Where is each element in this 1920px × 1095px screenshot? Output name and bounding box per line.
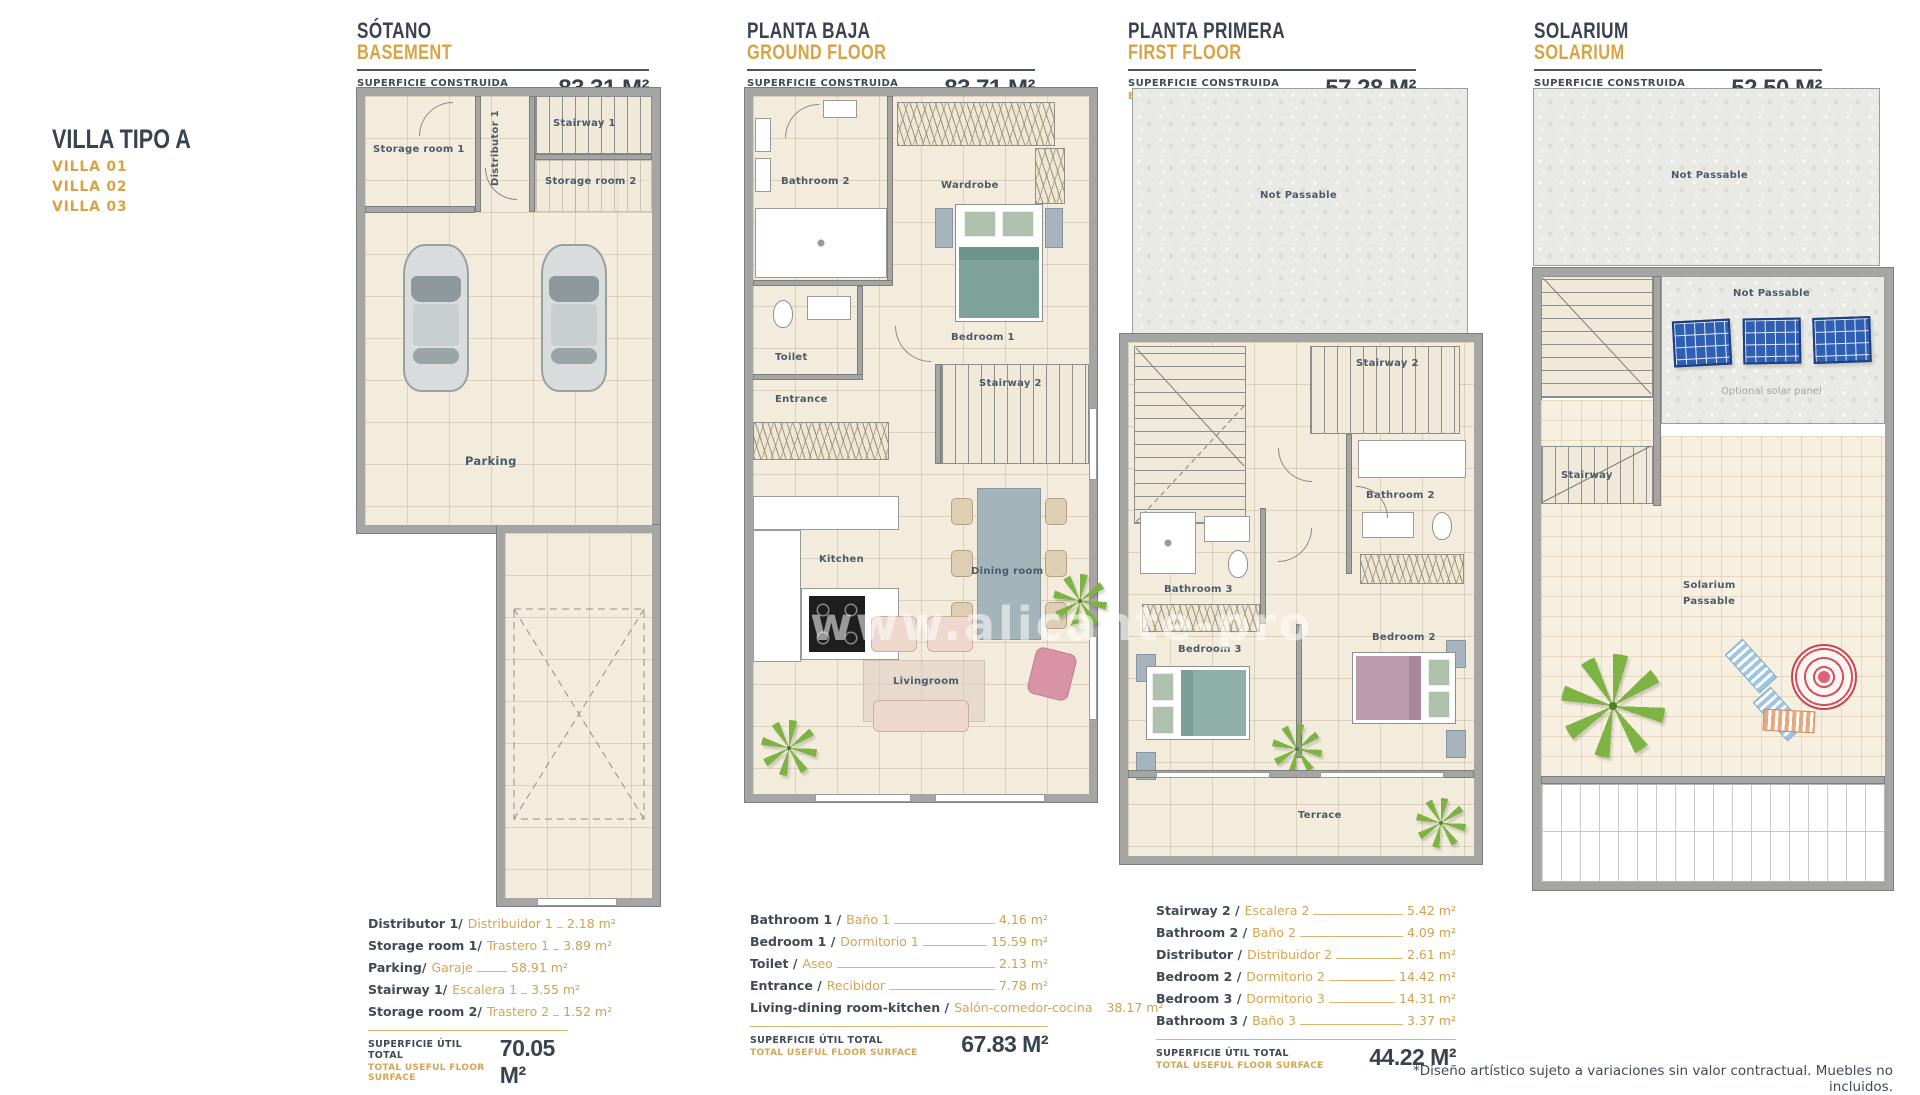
floor-name-es: SÓTANO [357, 20, 585, 42]
armchair [927, 616, 973, 652]
washbasin [755, 158, 771, 192]
toilet-cistern [823, 100, 857, 118]
sofa [873, 700, 969, 732]
sun-lounger-orange [1762, 709, 1815, 734]
nightstand [935, 208, 953, 248]
room-name-en: Bathroom 1 / [750, 912, 841, 927]
solarium-label-line1: Solarium [1683, 580, 1736, 591]
wall [1653, 276, 1661, 506]
room-row: Bathroom 1 /Baño 14.16 m² [750, 912, 1048, 927]
toilet-label: Toilet [775, 352, 808, 363]
stair-landing [1541, 400, 1653, 444]
toilet-bowl [773, 300, 793, 328]
bathtub [1358, 440, 1466, 478]
wall [1260, 508, 1266, 624]
leader-line [553, 1015, 559, 1016]
not-passable-top-label: Not Passable [1671, 170, 1748, 181]
total-label-en: TOTAL USEFUL FLOOR SURFACE [368, 1063, 500, 1083]
terrace-label: Terrace [1298, 810, 1342, 821]
plant [1053, 574, 1107, 628]
dining-chair [951, 498, 973, 525]
villa-type-title: VILLA TIPO A [52, 124, 191, 155]
room-row: Bedroom 1 /Dormitorio 115.59 m² [750, 934, 1048, 949]
bedroom-1-label: Bedroom 1 [951, 332, 1015, 343]
blanket-fold [1181, 670, 1193, 736]
leader-line [521, 993, 527, 994]
basement-room-list: Distributor 1/Distribuidor 12.18 m² Stor… [368, 916, 568, 1089]
room-name-es: Escalera 2 [1245, 903, 1310, 918]
livingroom-label: Livingroom [893, 676, 959, 687]
villa-02-label: VILLA 02 [52, 179, 226, 195]
kitchen-label: Kitchen [819, 554, 864, 565]
blanket-fold [959, 247, 1039, 260]
wall [1541, 776, 1885, 784]
room-name-en: Stairway 1/ [368, 982, 447, 997]
solar-panel [1672, 319, 1732, 368]
leader-line [477, 971, 507, 972]
plant [1416, 798, 1466, 848]
room-name-en: Bedroom 3 / [1156, 991, 1241, 1006]
washbasin [1204, 516, 1250, 542]
room-area: 3.89 m² [563, 938, 612, 953]
room-area: 2.18 m² [567, 916, 616, 931]
total-label-es: SUPERFICIE ÚTIL TOTAL [368, 1039, 500, 1061]
room-area: 2.13 m² [999, 956, 1048, 971]
blanket-fold [1409, 656, 1421, 720]
room-name-es: Distribuidor 1 [468, 916, 553, 931]
washbasin [755, 118, 771, 152]
car-1 [403, 244, 469, 392]
room-name-es: Escalera 1 [452, 982, 517, 997]
pergola-slats [1541, 784, 1885, 882]
pillow [1152, 673, 1174, 701]
total-useful-surface: 67.83 M² [961, 1031, 1048, 1058]
basement-plan: Storage room 1 Distributor 1 Stairway 1 … [357, 88, 660, 906]
room-row: Distributor /Distribuidor 22.61 m² [1156, 947, 1456, 962]
car-roof [551, 304, 597, 346]
room-row: Bedroom 3 /Dormitorio 314.31 m² [1156, 991, 1456, 1006]
room-area: 4.16 m² [999, 912, 1048, 927]
pillow [1428, 691, 1450, 718]
leader-line [1336, 958, 1403, 959]
stairway-2-label: Stairway 2 [979, 378, 1042, 389]
floor-name-es: SOLARIUM [1534, 20, 1759, 42]
wall [753, 280, 893, 286]
room-row: Distributor 1/Distribuidor 12.18 m² [368, 916, 568, 931]
armchair [871, 616, 917, 652]
wardrobe-label: Wardrobe [941, 180, 999, 191]
dining-room-label: Dining room [971, 566, 1043, 577]
room-name-es: Recibidor [827, 978, 885, 993]
bathroom-3-label: Bathroom 3 [1164, 584, 1233, 595]
room-name-es: Dormitorio 2 [1246, 969, 1325, 984]
leader-line [923, 945, 987, 946]
room-row: Living-dining room-kitchen /Salón-comedo… [750, 1000, 1048, 1015]
floor-name-en: BASEMENT [357, 42, 585, 64]
room-name-en: Storage room 2/ [368, 1004, 482, 1019]
room-name-en: Bathroom 2 / [1156, 925, 1247, 940]
stairway-label: Stairway [1561, 470, 1613, 481]
room-name-en: Distributor / [1156, 947, 1242, 962]
header-rule [357, 69, 649, 71]
room-name-es: Trastero 1 [487, 938, 549, 953]
room-name-es: Dormitorio 3 [1246, 991, 1325, 1006]
room-row: Parking/Garaje58.91 m² [368, 960, 568, 975]
header-rule [1128, 69, 1416, 71]
nightstand [1045, 208, 1063, 248]
wardrobe-hatch [897, 102, 1055, 146]
room-row: Storage room 1/Trastero 13.89 m² [368, 938, 568, 953]
shower-tray [755, 208, 887, 278]
room-name-es: Trastero 2 [487, 1004, 549, 1019]
leader-line [889, 989, 995, 990]
room-area: 15.59 m² [991, 934, 1048, 949]
toilet-bowl [1228, 550, 1248, 578]
room-name-en: Stairway 2 / [1156, 903, 1240, 918]
room-name-en: Toilet / [750, 956, 797, 971]
total-label-es: SUPERFICIE ÚTIL TOTAL [1156, 1048, 1324, 1059]
bed-bedroom-3 [1146, 666, 1250, 740]
solarium-plan: Not Passable Stairway Not Passable Optio… [1533, 88, 1893, 890]
leader-line [553, 949, 559, 950]
kitchen-counter-left [753, 530, 801, 662]
window [1089, 636, 1097, 720]
parasol-umbrella [1791, 644, 1857, 710]
toilet-bowl [1432, 512, 1452, 540]
room-name-es: Baño 2 [1252, 925, 1296, 940]
wall [1346, 434, 1352, 574]
floor-name-en: GROUND FLOOR [747, 42, 972, 64]
first-floor-room-list: Stairway 2 /Escalera 25.42 m² Bathroom 2… [1156, 903, 1456, 1071]
room-name-en: Bathroom 3 / [1156, 1013, 1247, 1028]
leader-line [1329, 1002, 1395, 1003]
plant [761, 720, 817, 776]
room-area: 4.09 m² [1407, 925, 1456, 940]
pillow [1428, 659, 1450, 686]
room-row: Stairway 2 /Escalera 25.42 m² [1156, 903, 1456, 918]
floor-name-es: PLANTA BAJA [747, 20, 972, 42]
room-name-es: Salón-comedor-cocina [954, 1000, 1092, 1015]
room-name-es: Dormitorio 1 [840, 934, 919, 949]
room-name-en: Bedroom 1 / [750, 934, 835, 949]
floor-name-es: PLANTA PRIMERA [1128, 20, 1353, 42]
total-label-es: SUPERFICIE ÚTIL TOTAL [750, 1035, 918, 1046]
bedroom-3-label: Bedroom 3 [1178, 644, 1242, 655]
shower-tray [1140, 512, 1196, 574]
leader-line [1313, 914, 1403, 915]
wall [887, 96, 893, 284]
floorplan-sheet: { "colors":{"navy":"#3e4a58","gold":"#d7… [0, 0, 1920, 1080]
total-useful-surface: 70.05 M² [500, 1035, 568, 1089]
pillow [1152, 706, 1174, 734]
room-area: 14.31 m² [1399, 991, 1456, 1006]
car-roof [413, 304, 459, 346]
wall [475, 96, 481, 212]
room-name-en: Distributor 1/ [368, 916, 463, 931]
room-area: 5.42 m² [1407, 903, 1456, 918]
wall [935, 364, 941, 464]
not-passable-label: Not Passable [1733, 288, 1810, 299]
window [815, 794, 911, 802]
dining-chair [951, 550, 973, 577]
first-floor-plan: Not Passable Stairway 2 Bathroom 2 Bathr… [1120, 88, 1482, 868]
total-label-en: TOTAL USEFUL FLOOR SURFACE [750, 1048, 918, 1058]
room-row: Entrance /Recibidor7.78 m² [750, 978, 1048, 993]
total-row: SUPERFICIE ÚTIL TOTALTOTAL USEFUL FLOOR … [750, 1026, 1048, 1058]
car-rear-window [413, 348, 459, 364]
floor-name-en: SOLARIUM [1534, 42, 1759, 64]
dining-chair [1045, 498, 1067, 525]
pillow [1002, 211, 1034, 237]
plant [1272, 724, 1322, 774]
room-name-en: Living-dining room-kitchen / [750, 1000, 949, 1015]
solarium-label-line2: Passable [1683, 596, 1735, 607]
closet-hatch [1360, 554, 1464, 584]
pillow [964, 211, 996, 237]
stairwell-diagonal [1134, 346, 1246, 524]
garage-ramp [513, 608, 645, 820]
not-passable-label: Not Passable [1260, 190, 1337, 201]
washbasin [807, 296, 851, 320]
total-row: SUPERFICIE ÚTIL TOTALTOTAL USEFUL FLOOR … [368, 1030, 568, 1089]
leader-line [894, 923, 995, 924]
room-name-en: Entrance / [750, 978, 822, 993]
disclaimer-note: *Diseño artístico sujeto a variaciones s… [1385, 1063, 1893, 1095]
leader-line [837, 967, 995, 968]
room-area: 7.78 m² [999, 978, 1048, 993]
car-2 [541, 244, 607, 392]
closet-hatch [1142, 604, 1260, 632]
gap-strip [1661, 424, 1885, 436]
floor-name-en: FIRST FLOOR [1128, 42, 1353, 64]
ground-floor-plan: Bathroom 2 Wardrobe Bedroom 1 Toilet Ent… [745, 88, 1097, 802]
room-area: 14.42 m² [1399, 969, 1456, 984]
parking-label: Parking [465, 454, 517, 468]
room-row: Toilet /Aseo2.13 m² [750, 956, 1048, 971]
room-area: 3.55 m² [531, 982, 580, 997]
room-row: Bathroom 2 /Baño 24.09 m² [1156, 925, 1456, 940]
room-name-es: Distribuidor 2 [1247, 947, 1332, 962]
wardrobe-hatch-side [1035, 148, 1065, 204]
solar-panel [1743, 317, 1802, 364]
room-area: 2.61 m² [1407, 947, 1456, 962]
leader-line [1300, 936, 1403, 937]
villa-01-label: VILLA 01 [52, 159, 226, 175]
cooktop [809, 596, 865, 652]
villa-03-label: VILLA 03 [52, 199, 226, 215]
room-row: Bathroom 3 /Baño 33.37 m² [1156, 1013, 1456, 1028]
distributor-1-label: Distributor 1 [490, 110, 501, 186]
total-label-en: TOTAL USEFUL FLOOR SURFACE [1156, 1061, 1324, 1071]
room-name-es: Aseo [802, 956, 832, 971]
room-name-es: Baño 1 [846, 912, 890, 927]
window [1089, 408, 1097, 480]
header-rule [747, 69, 1035, 71]
bedroom-2-label: Bedroom 2 [1372, 632, 1436, 643]
solar-panel [1812, 316, 1872, 364]
wall [753, 374, 863, 380]
leader-line [557, 927, 563, 928]
stairway-1-label: Stairway 1 [553, 118, 616, 129]
leader-line [1300, 1024, 1403, 1025]
room-row: Storage room 2/Trastero 21.52 m² [368, 1004, 568, 1019]
room-area: 3.37 m² [1407, 1013, 1456, 1028]
entrance-closet-hatch [753, 422, 889, 460]
wall [365, 206, 475, 213]
header-rule [1534, 69, 1822, 71]
palm-plant [1561, 654, 1665, 758]
kitchen-counter-top [753, 496, 899, 530]
room-name-en: Storage room 1/ [368, 938, 482, 953]
room-name-es: Garaje [431, 960, 472, 975]
leader-line [1329, 980, 1395, 981]
garage-door [537, 898, 617, 906]
not-passable-roof [1132, 88, 1468, 334]
storage-room-1-label: Storage room 1 [373, 144, 465, 155]
bathroom-2-label: Bathroom 2 [781, 176, 850, 187]
room-row: Stairway 1/Escalera 13.55 m² [368, 982, 568, 997]
window [1156, 772, 1270, 778]
dining-table [977, 488, 1041, 640]
optional-solar-panel-note: Optional solar panel [1721, 386, 1822, 397]
dining-chair [1045, 550, 1067, 577]
room-area: 38.17 m² [1106, 1000, 1163, 1015]
car-rear-window [551, 348, 597, 364]
window [1320, 772, 1444, 778]
room-name-es: Baño 3 [1252, 1013, 1296, 1028]
sliding-door [935, 794, 1045, 802]
sheet-title-block: VILLA TIPO A VILLA 01 VILLA 02 VILLA 03 [52, 124, 226, 215]
room-area: 1.52 m² [563, 1004, 612, 1019]
room-area: 58.91 m² [511, 960, 568, 975]
entrance-label: Entrance [775, 394, 828, 405]
bed-bedroom-1 [955, 204, 1043, 322]
storage-room-2-label: Storage room 2 [545, 176, 637, 187]
stairway-2-label: Stairway 2 [1356, 358, 1419, 369]
room-name-en: Bedroom 2 / [1156, 969, 1241, 984]
room-row: Bedroom 2 /Dormitorio 214.42 m² [1156, 969, 1456, 984]
car-windshield [411, 276, 461, 302]
room-name-en: Parking/ [368, 960, 426, 975]
car-windshield [549, 276, 599, 302]
ground-floor-room-list: Bathroom 1 /Baño 14.16 m² Bedroom 1 /Dor… [750, 912, 1048, 1058]
wall [857, 286, 863, 380]
bed-bedroom-2 [1352, 652, 1456, 724]
nightstand [1446, 730, 1466, 758]
